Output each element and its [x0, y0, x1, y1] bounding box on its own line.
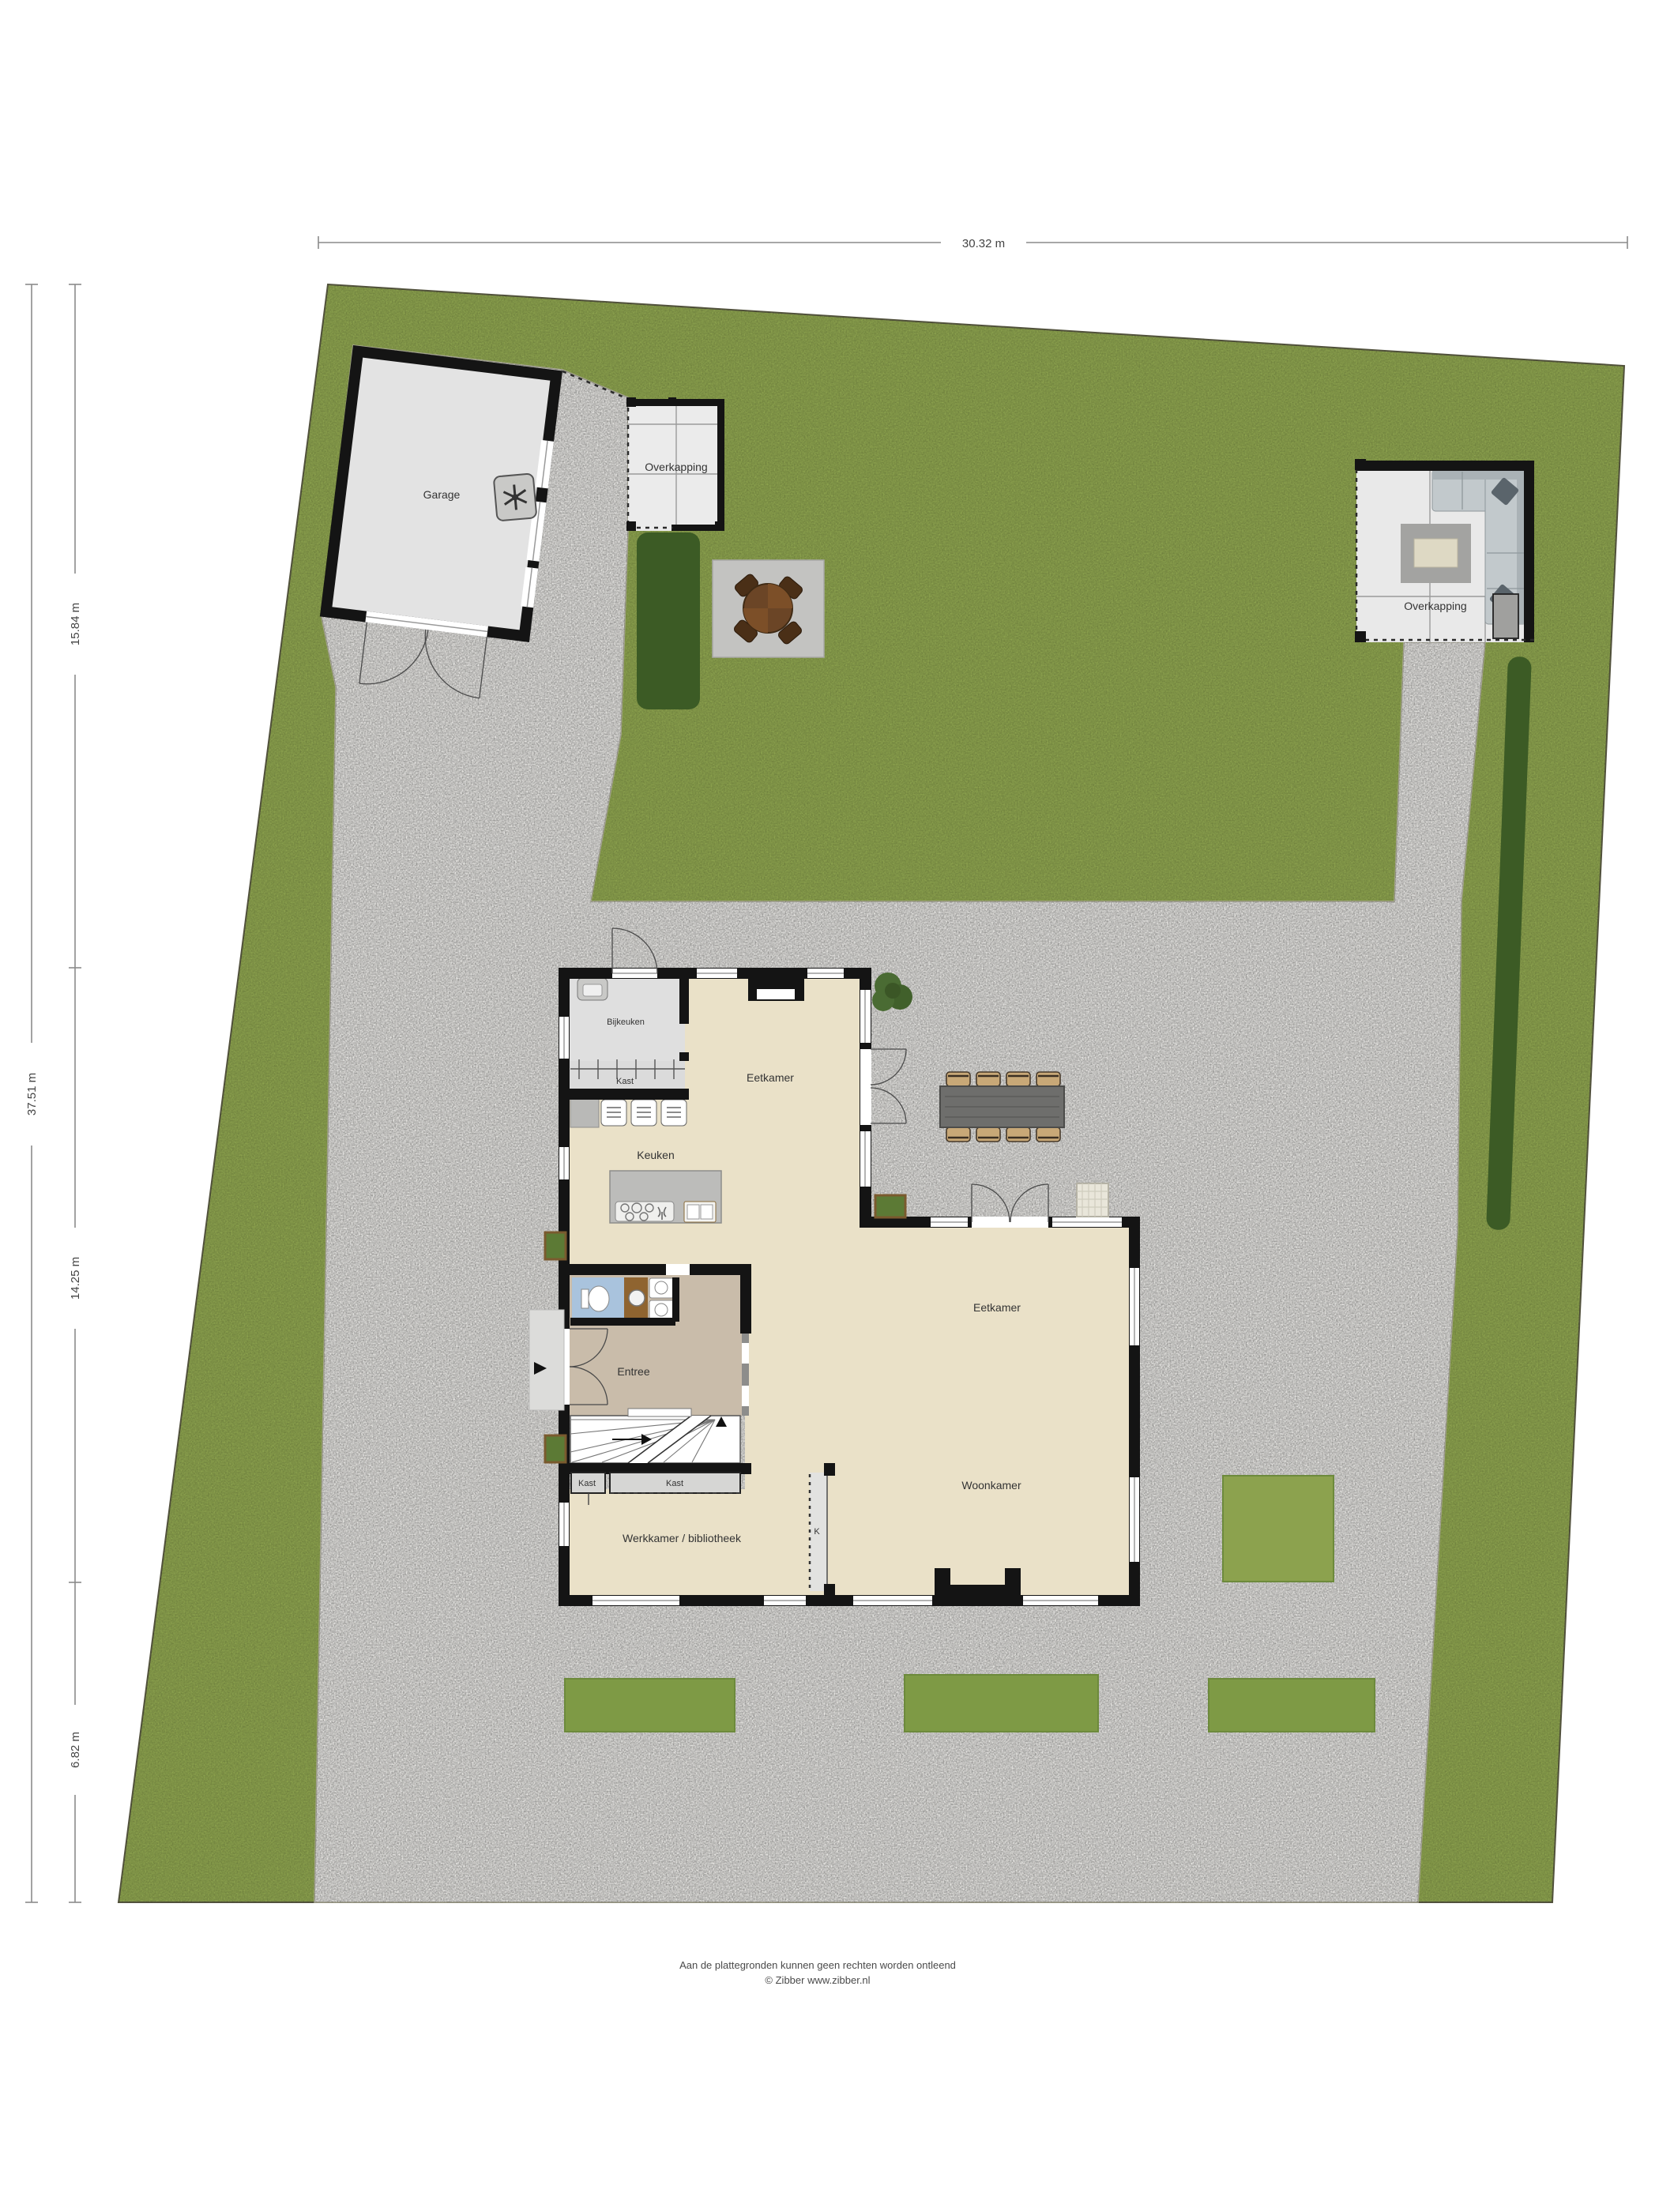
bijkeuken-label: Bijkeuken	[607, 1018, 645, 1027]
dim-left-total-label: 37.51 m	[25, 1073, 39, 1115]
kast-wide-label: Kast	[666, 1479, 683, 1488]
overkapping-right-structure	[1355, 459, 1534, 642]
wc-basin	[629, 1290, 645, 1306]
planting-bed-left	[565, 1679, 735, 1732]
rattan-lounge	[1077, 1183, 1108, 1217]
entrance-stoop	[529, 1310, 564, 1410]
werkkamer-label: Werkkamer / bibliotheek	[623, 1532, 742, 1544]
toilet-tank	[581, 1289, 589, 1308]
dim-left-upper-label: 15.84 m	[69, 603, 82, 645]
staircase	[570, 1409, 740, 1463]
footer-copyright: © Zibber www.zibber.nl	[765, 1974, 870, 1986]
kast-top-label: Kast	[616, 1077, 634, 1086]
kast-small-label: Kast	[578, 1479, 596, 1488]
planting-bed-right	[1209, 1679, 1375, 1732]
overkapping-right-label: Overkapping	[1404, 600, 1466, 612]
bijkeuken-sink-icon	[577, 978, 608, 1000]
dim-top-label: 30.32 m	[962, 237, 1005, 250]
entree-label: Entree	[617, 1365, 649, 1378]
dim-left-middle-label: 14.25 m	[69, 1257, 82, 1300]
eetkamer-label: Eetkamer	[973, 1301, 1021, 1314]
floor-werkkamer	[564, 1489, 815, 1601]
planting-bed-center	[905, 1675, 1098, 1732]
garage-label: Garage	[423, 488, 461, 501]
footer: Aan de plattegronden kunnen geen rechten…	[679, 1959, 956, 1986]
planter	[545, 1435, 566, 1462]
eetkamer-top-label: Eetkamer	[747, 1071, 794, 1084]
keuken-label: Keuken	[637, 1149, 674, 1161]
heat-pump-icon	[494, 473, 537, 521]
hedge-near-garage	[637, 532, 700, 709]
side-cabinet	[1493, 594, 1518, 638]
k-label: K	[814, 1527, 820, 1537]
eetkamer-doors-opening	[860, 1049, 871, 1125]
woonkamer-label: Woonkamer	[961, 1479, 1021, 1492]
dim-left-lower-label: 6.82 m	[69, 1732, 82, 1768]
grass-square	[1223, 1476, 1334, 1582]
planter	[545, 1232, 566, 1259]
toilet-icon	[589, 1286, 609, 1311]
overkapping-top-label: Overkapping	[645, 461, 707, 473]
kitchen-island	[610, 1171, 721, 1223]
planter	[875, 1195, 905, 1217]
footer-disclaimer: Aan de plattegronden kunnen geen rechten…	[679, 1959, 956, 1971]
coffee-table	[1414, 539, 1458, 567]
round-table-patio	[713, 560, 824, 657]
site-plan-drawing: Garage Overkapping	[0, 0, 1659, 2212]
site-plan-page: Garage Overkapping	[0, 0, 1659, 2212]
